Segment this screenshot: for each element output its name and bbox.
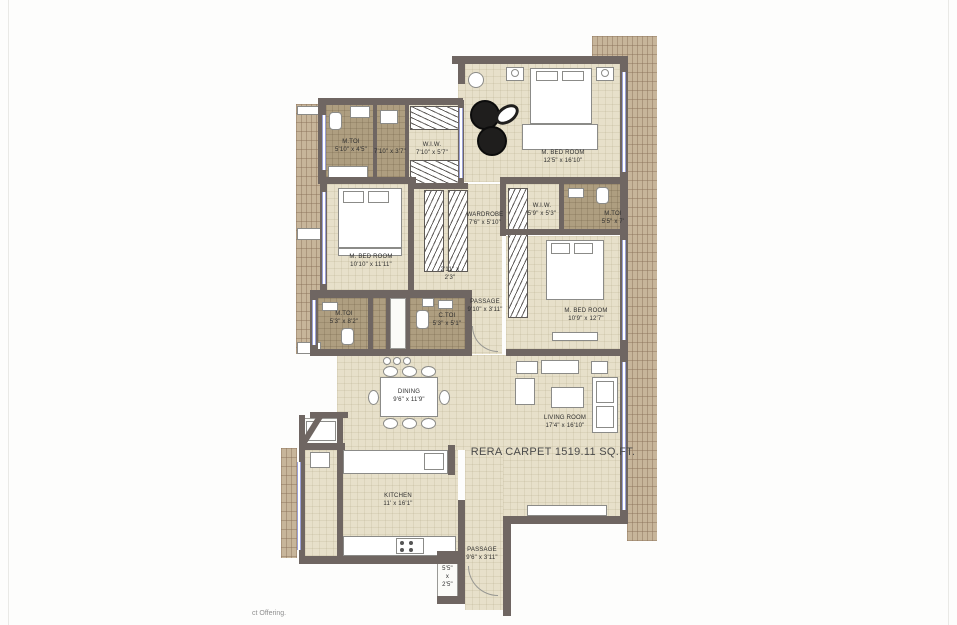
room-label-bed-left: M. BED ROOM 10'10" x 11'11" — [338, 253, 404, 269]
wall-segment — [458, 56, 465, 84]
window — [622, 240, 626, 340]
room-label-nook-bottom: 5'5" x 2'5" — [437, 565, 458, 589]
pouf — [477, 126, 507, 156]
chair — [383, 418, 398, 429]
chair — [402, 366, 417, 377]
wall-segment — [310, 290, 472, 298]
floor-toilet-lobby — [373, 298, 386, 349]
chair — [421, 418, 436, 429]
pillow — [574, 243, 593, 254]
window — [322, 192, 326, 284]
lamp — [511, 69, 519, 77]
watermark-text: ct Offering. — [252, 610, 286, 617]
cistern — [422, 298, 434, 307]
room-name: LIVING ROOM — [530, 414, 600, 422]
wall-segment — [318, 98, 463, 105]
deck-door — [297, 228, 321, 240]
pillow — [551, 243, 570, 254]
window — [459, 108, 463, 178]
floor-shaft — [390, 298, 406, 349]
room-dim: 5'5" — [437, 565, 458, 573]
wall-segment — [500, 183, 506, 236]
burner — [409, 541, 413, 545]
pillow — [368, 191, 389, 203]
wall-segment — [408, 183, 414, 292]
basin — [350, 106, 370, 118]
room-dim: 5'3" x 5'1" — [424, 320, 470, 328]
room-name: PASSAGE — [461, 298, 509, 306]
page-edge-line — [8, 0, 9, 625]
floor-plan: M.TOI 5'10" x 4'5" 7'10" x 3'7" W.I.W. 7… — [0, 0, 957, 625]
room-name: PASSAGE — [457, 546, 507, 554]
room-dim: 2'3" — [432, 274, 468, 282]
room-dim: 17'4" x 16'10" — [530, 422, 600, 430]
toilet — [596, 187, 609, 204]
pillow — [562, 71, 584, 81]
room-dim: 5'9" x 5'3" — [517, 210, 567, 218]
wall-segment — [500, 177, 628, 184]
washer — [310, 452, 330, 468]
wall-segment — [337, 418, 343, 560]
chair — [383, 366, 398, 377]
burner — [400, 548, 404, 552]
wall-segment — [448, 445, 455, 475]
burner — [400, 541, 404, 545]
room-name: M. BED ROOM — [527, 149, 599, 157]
wardrobe-unit — [448, 190, 468, 272]
room-name: M. BED ROOM — [551, 307, 621, 315]
armchair — [515, 378, 535, 405]
wiw-shelf — [410, 106, 463, 130]
wall-segment — [318, 177, 416, 184]
wall-segment — [503, 516, 628, 524]
wall-segment — [506, 229, 622, 235]
room-label-living: LIVING ROOM 17'4" x 16'10" — [530, 414, 600, 430]
room-dim: 7'10" x 3'7" — [372, 148, 408, 156]
room-dim: 10'9" x 12'7" — [551, 315, 621, 323]
lamp — [601, 69, 609, 77]
wall-segment — [506, 349, 628, 356]
sofa-back — [591, 361, 608, 374]
room-dim: 5'3" x 8'2" — [321, 318, 367, 326]
wall-segment — [503, 516, 511, 616]
window — [622, 362, 626, 510]
basin — [380, 110, 398, 124]
kitchen-sink — [424, 453, 444, 470]
room-dim: 10'10" x 11'11" — [338, 261, 404, 269]
room-label-dining: DINING 9'6" x 11'9" — [381, 388, 437, 404]
window — [622, 72, 626, 172]
coffee-table — [551, 387, 584, 408]
room-label-master-bed-top: M. BED ROOM 12'5" x 16'10" — [527, 149, 599, 165]
sofa-back — [516, 361, 538, 374]
room-name: WARDROBE — [457, 211, 513, 219]
wall-segment — [406, 292, 410, 351]
room-name: M.TOI — [321, 310, 367, 318]
deck-right-strip — [627, 36, 657, 541]
room-name: M.TOI — [326, 138, 376, 146]
sofa-back — [541, 360, 579, 374]
room-label-mtoi-bottom: M.TOI 5'3" x 8'2" — [321, 310, 367, 326]
room-dim: 2'5" — [437, 581, 458, 589]
room-label-mtoi-right: M.TOI 5'5" x 7' — [592, 210, 634, 226]
pillow — [536, 71, 558, 81]
chair — [421, 366, 436, 377]
deck-left-lower — [281, 448, 297, 558]
bed-bench — [522, 124, 598, 150]
basin — [438, 300, 453, 309]
room-name: DINING — [381, 388, 437, 396]
decor-circle — [403, 357, 411, 365]
decor-circle — [383, 357, 391, 365]
room-label-passage-bottom: PASSAGE 9'6" x 3'11" — [457, 546, 507, 562]
basin — [568, 188, 584, 198]
room-label-lobby-top: 7'10" x 3'7" — [372, 148, 408, 156]
room-name: W.I.W. — [517, 202, 567, 210]
room-name: M.TOI — [592, 210, 634, 218]
room-dim: 12'5" x 16'10" — [527, 157, 599, 165]
toilet — [341, 328, 354, 345]
room-label-kitchen: KITCHEN 11' x 16'1" — [364, 492, 432, 508]
room-name: C.TOI — [424, 312, 470, 320]
chair — [439, 390, 450, 405]
room-label-wiw-right: W.I.W. 5'9" x 5'3" — [517, 202, 567, 218]
bed-bench — [552, 332, 598, 341]
window — [312, 300, 316, 345]
tv-console — [527, 505, 607, 516]
room-dim: x — [437, 573, 458, 581]
room-label-mtoi-top: M.TOI 5'10" x 4'5" — [326, 138, 376, 154]
wall-segment — [452, 56, 628, 64]
room-dim: 2'11" x — [432, 266, 468, 274]
chair — [368, 390, 379, 405]
room-label-wardrobe: WARDROBE 7'6" x 5'10" — [457, 211, 513, 227]
sofa-cushion — [596, 381, 614, 403]
wall-segment — [310, 349, 472, 356]
room-dim: 7'6" x 5'10" — [457, 219, 513, 227]
burner — [409, 548, 413, 552]
room-label-wiw-top: W.I.W. 7'10" x 5'7" — [406, 141, 458, 157]
room-dim: 7'10" x 5'7" — [406, 149, 458, 157]
stool — [468, 72, 484, 88]
wall-segment — [299, 556, 462, 564]
room-dim: 11' x 16'1" — [364, 500, 432, 508]
window — [297, 462, 301, 550]
room-dim: 9'6" x 11'9" — [381, 396, 437, 404]
wall-segment — [368, 292, 373, 351]
room-name: KITCHEN — [364, 492, 432, 500]
rera-carpet-text: RERA CARPET 1519.11 SQ.FT. — [468, 446, 638, 458]
room-label-bed-right: M. BED ROOM 10'9" x 12'7" — [551, 307, 621, 323]
room-name: W.I.W. — [406, 141, 458, 149]
room-name: M. BED ROOM — [338, 253, 404, 261]
chair — [402, 418, 417, 429]
wall-segment — [386, 292, 390, 351]
toilet — [329, 112, 342, 130]
room-label-nook-center: 2'11" x 2'3" — [432, 266, 468, 282]
wiw-shelf — [410, 160, 463, 184]
room-dim: 5'5" x 7' — [592, 218, 634, 226]
decor-circle — [393, 357, 401, 365]
room-dim: 9'6" x 3'11" — [457, 554, 507, 562]
room-dim: 5'10" x 4'5" — [326, 146, 376, 154]
wardrobe-unit — [424, 190, 444, 272]
room-label-ctoi: C.TOI 5'3" x 5'1" — [424, 312, 470, 328]
pillow — [343, 191, 364, 203]
page-edge-line — [948, 0, 949, 625]
